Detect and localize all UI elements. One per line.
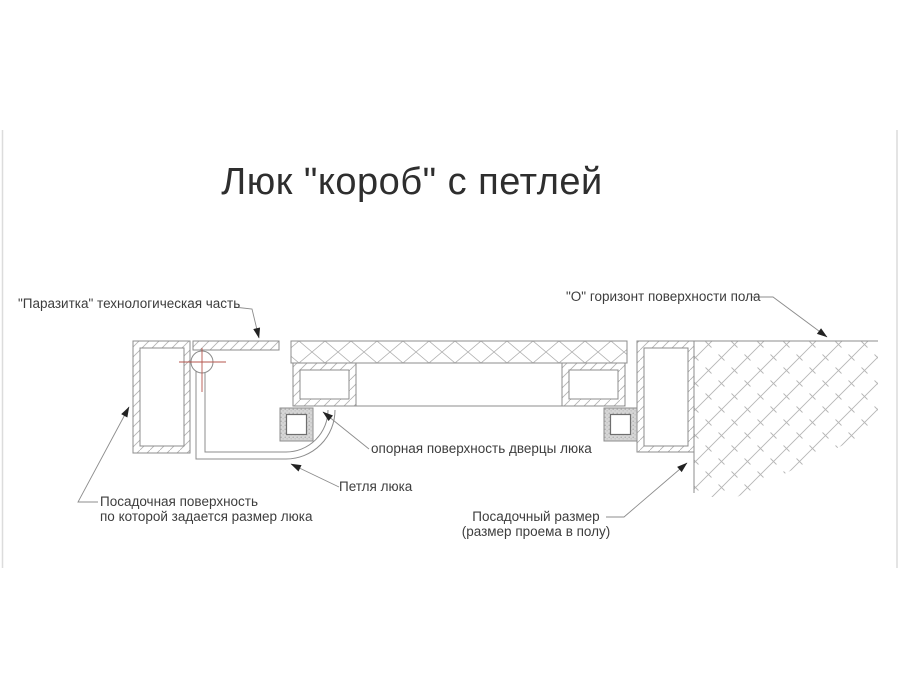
parasitka-bar — [193, 341, 279, 350]
floor-soil-hatch — [694, 341, 878, 497]
support-pad-left — [280, 408, 313, 441]
support-pad-right — [604, 408, 637, 441]
drawing-title: Люк "короб" с петлей — [0, 161, 824, 203]
label-seating-surface-line2: по которой задается размер люка — [100, 509, 313, 524]
leader-door-support — [323, 412, 369, 449]
label-seating-size-line2: (размер проема в полу) — [453, 524, 619, 539]
door-slab — [291, 341, 627, 363]
hatch-cross-section-drawing — [0, 0, 900, 700]
door-frame-left-box-inner — [300, 370, 349, 399]
label-floor-horizon: "О" горизонт поверхности пола — [566, 289, 761, 304]
support-pad-left-inner — [287, 415, 307, 435]
door-frame-right-box-inner — [569, 370, 618, 399]
frame-left-inner — [140, 348, 184, 446]
leader-floor-horizon — [752, 297, 827, 337]
label-seating-surface-line1: Посадочная поверхность — [100, 494, 313, 509]
door-frame — [293, 363, 625, 406]
label-door-support: опорная поверхность дверцы люка — [371, 441, 592, 456]
leader-hinge — [291, 464, 339, 487]
frame-right-inner — [644, 348, 688, 446]
floor-mass — [694, 341, 878, 497]
leader-parasitka — [234, 307, 259, 338]
frame-member-right — [637, 341, 694, 452]
frame-member-left — [133, 341, 190, 453]
label-seating-size: Посадочный размер (размер проема в полу) — [453, 509, 619, 539]
support-pad-right-inner — [611, 415, 631, 435]
leader-seating-surface — [78, 407, 129, 502]
label-seating-surface: Посадочная поверхность по которой задает… — [100, 494, 313, 524]
label-parasitka: "Паразитка" технологическая часть — [18, 296, 240, 311]
label-seating-size-line1: Посадочный размер — [453, 509, 619, 524]
label-hinge: Петля люка — [339, 479, 412, 494]
technical-drawing-page: Люк "короб" с петлей "Паразитка" техноло… — [0, 0, 900, 700]
